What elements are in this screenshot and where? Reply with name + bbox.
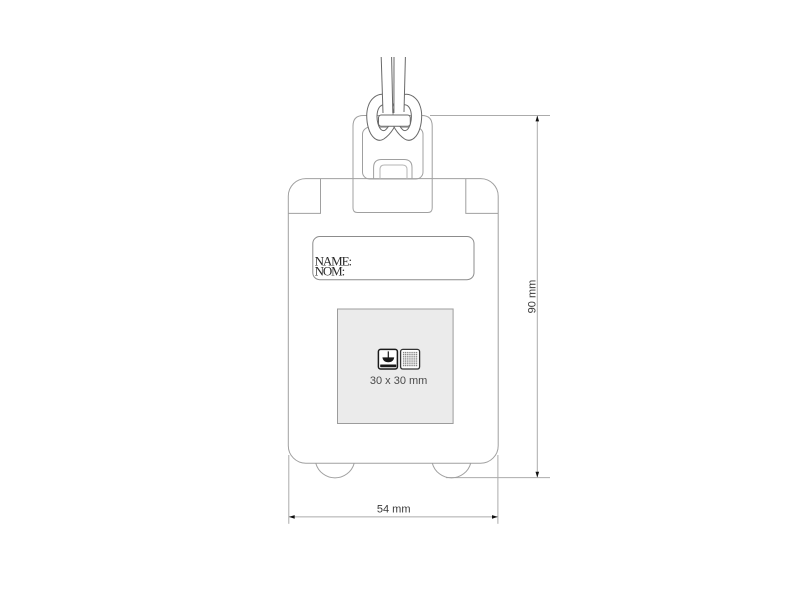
svg-text:30 x 30 mm: 30 x 30 mm xyxy=(370,375,427,387)
svg-text:54 mm: 54 mm xyxy=(377,504,411,516)
svg-text:NOM:: NOM: xyxy=(315,264,345,279)
svg-text:90 mm: 90 mm xyxy=(526,280,538,314)
